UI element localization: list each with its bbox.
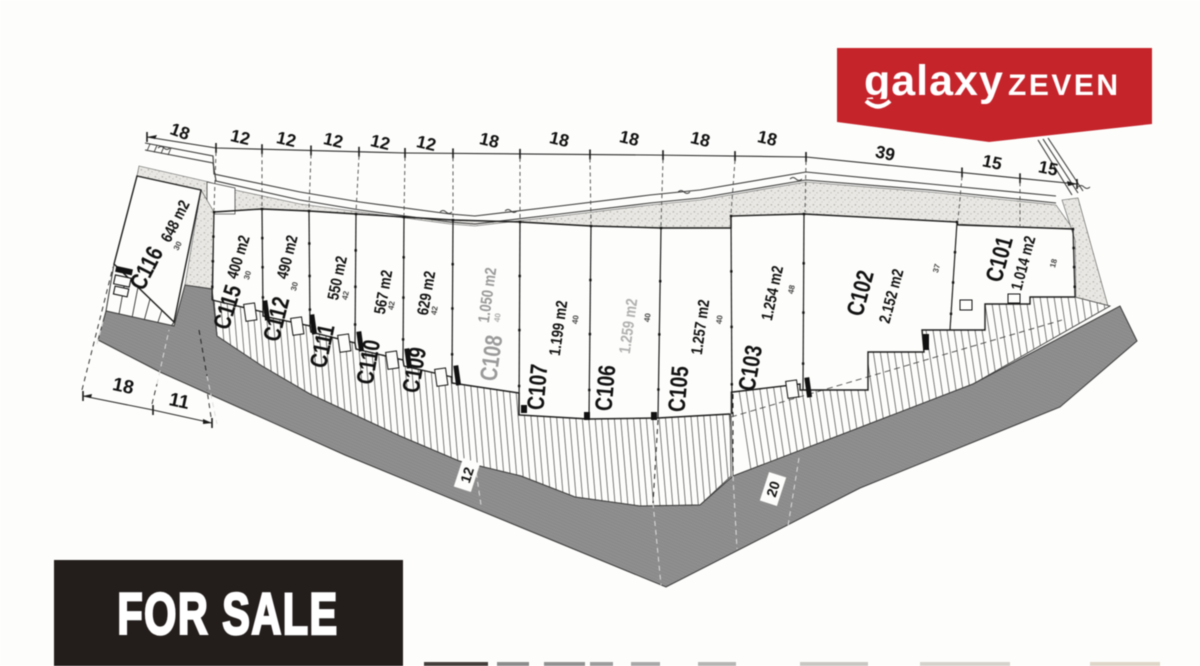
- svg-text:40: 40: [714, 314, 724, 325]
- svg-text:ZEVEN: ZEVEN: [1008, 69, 1121, 102]
- svg-text:40: 40: [642, 312, 652, 323]
- svg-text:FOR SALE: FOR SALE: [117, 581, 338, 647]
- svg-text:C107: C107: [521, 363, 553, 411]
- svg-text:C106: C106: [589, 364, 621, 412]
- svg-text:18: 18: [111, 374, 136, 399]
- svg-text:40: 40: [492, 312, 502, 323]
- svg-text:40: 40: [570, 314, 580, 325]
- svg-text:C105: C105: [662, 365, 694, 413]
- svg-text:galaxy: galaxy: [864, 57, 1004, 105]
